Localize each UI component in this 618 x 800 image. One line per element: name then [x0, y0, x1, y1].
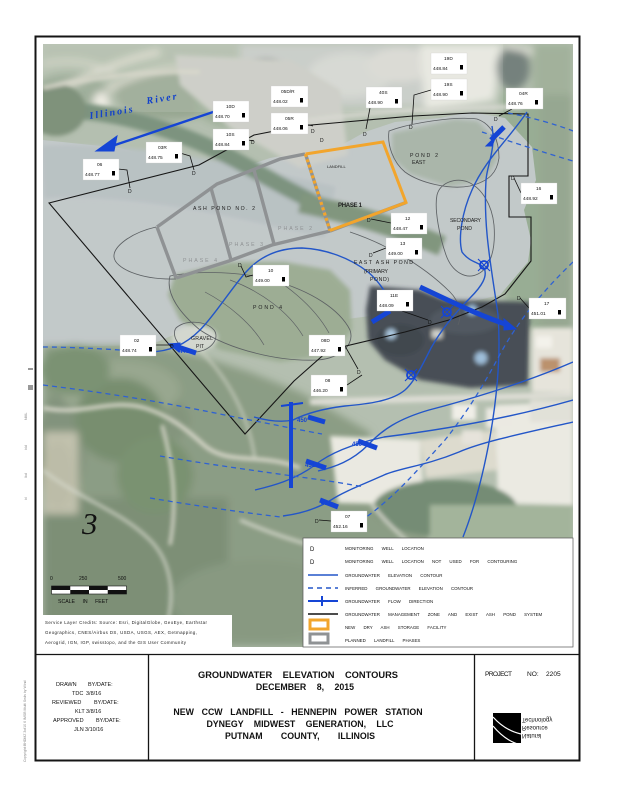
svg-text:3/8/16: 3/8/16 — [86, 691, 101, 697]
svg-text:250: 250 — [79, 576, 88, 582]
svg-text:D: D — [320, 138, 324, 144]
svg-text:08: 08 — [325, 378, 331, 384]
svg-text:DYNEGY MIDWEST GENERATION, LLC: DYNEGY MIDWEST GENERATION, LLC — [206, 719, 394, 729]
svg-text:GROUNDWATER MANAGEMENT ZONE AN: GROUNDWATER MANAGEMENT ZONE AND EXIST AS… — [345, 612, 543, 617]
svg-text:PHASE 3: PHASE 3 — [229, 242, 263, 248]
svg-text:07: 07 — [345, 514, 351, 520]
svg-text:19S: 19S — [444, 82, 453, 88]
svg-text:BY/DATE:: BY/DATE: — [96, 718, 121, 724]
svg-text:NO:: NO: — [527, 671, 539, 678]
svg-text:INFERRED GROUNDWATER ELEVATION: INFERRED GROUNDWATER ELEVATION CONTOUR — [345, 586, 473, 591]
svg-text:02: 02 — [134, 338, 140, 344]
svg-text:D: D — [128, 189, 132, 195]
svg-text:D: D — [428, 320, 432, 326]
svg-text:10D: 10D — [226, 104, 235, 110]
svg-text:448.90: 448.90 — [368, 100, 383, 106]
svg-text:447.92: 447.92 — [311, 348, 326, 354]
svg-text:0: 0 — [50, 576, 53, 582]
svg-text:448.74: 448.74 — [122, 348, 137, 354]
svg-text:D: D — [367, 218, 371, 224]
svg-text:10: 10 — [268, 268, 274, 274]
svg-text:lbd: lbd — [24, 473, 28, 478]
svg-text:449: 449 — [179, 349, 190, 355]
svg-text:448.47: 448.47 — [393, 226, 408, 232]
svg-text:D: D — [369, 253, 373, 259]
svg-text:PHASE 4: PHASE 4 — [183, 258, 217, 264]
svg-text:KLT: KLT — [75, 709, 85, 715]
svg-text:PHASE 1: PHASE 1 — [338, 203, 363, 209]
svg-text:D: D — [170, 344, 174, 350]
svg-text:D: D — [315, 519, 319, 525]
svg-text:450: 450 — [297, 418, 308, 424]
svg-text:448.77: 448.77 — [85, 172, 100, 178]
svg-text:TDC: TDC — [72, 691, 83, 697]
svg-text:448.76: 448.76 — [508, 101, 523, 107]
svg-text:(PRIMARY: (PRIMARY — [364, 269, 389, 275]
svg-text:40S: 40S — [379, 90, 388, 96]
svg-text:GRAVEL: GRAVEL — [191, 336, 213, 342]
svg-text:NML: NML — [24, 413, 28, 420]
svg-text:NEW CCW LANDFILL - HENNEPIN PO: NEW CCW LANDFILL - HENNEPIN POWER STATIO… — [173, 707, 422, 717]
svg-text:JLN: JLN — [74, 727, 84, 733]
svg-text:EAST: EAST — [412, 160, 426, 166]
svg-text:448.70: 448.70 — [215, 114, 230, 120]
svg-text:POND: POND — [457, 226, 472, 232]
svg-text:GROUNDWATER ELEVATION CONTOUR: GROUNDWATER ELEVATION CONTOUR — [345, 573, 442, 578]
svg-text:Resource: Resource — [522, 724, 548, 730]
svg-text:bl: bl — [24, 497, 28, 500]
svg-text:POND): POND) — [370, 277, 389, 283]
svg-text:D: D — [494, 117, 498, 123]
svg-text:D: D — [192, 171, 196, 177]
svg-text:448.84: 448.84 — [433, 66, 448, 72]
svg-text:06: 06 — [97, 162, 103, 168]
svg-text:451.01: 451.01 — [531, 311, 546, 317]
svg-text:05D/R: 05D/R — [281, 89, 295, 95]
svg-text:03R: 03R — [158, 145, 167, 151]
svg-text:Aerogrid, IGN, IGP, swisstopo,: Aerogrid, IGN, IGP, swisstopo, and the G… — [45, 640, 187, 645]
svg-text:D: D — [238, 263, 242, 269]
svg-text:D: D — [409, 125, 413, 131]
svg-text:10S: 10S — [226, 132, 235, 138]
svg-text:D: D — [511, 176, 515, 182]
svg-text:2205: 2205 — [546, 671, 561, 678]
svg-text:449.00: 449.00 — [388, 251, 403, 257]
svg-text:GROUNDWATER ELEVATION CONTOURS: GROUNDWATER ELEVATION CONTOURS — [198, 670, 398, 680]
svg-text:17: 17 — [544, 301, 550, 307]
svg-text:D: D — [310, 560, 315, 566]
svg-text:EAST ASH POND: EAST ASH POND — [354, 260, 413, 266]
svg-text:452.16: 452.16 — [333, 524, 348, 530]
svg-text:bld: bld — [24, 445, 28, 450]
svg-text:Natural: Natural — [522, 732, 541, 738]
svg-text:D: D — [357, 370, 361, 376]
svg-text:D: D — [251, 140, 255, 146]
svg-text:449.00: 449.00 — [255, 278, 270, 284]
svg-text:04R: 04R — [519, 91, 528, 97]
svg-text:448.84: 448.84 — [215, 142, 230, 148]
svg-text:448.75: 448.75 — [148, 155, 163, 161]
svg-text:ASH POND NO. 2: ASH POND NO. 2 — [193, 206, 255, 212]
svg-text:11E: 11E — [390, 293, 398, 299]
svg-text:13: 13 — [400, 241, 406, 247]
svg-text:12: 12 — [405, 216, 411, 222]
svg-text:05R: 05R — [285, 116, 294, 122]
svg-text:REVIEWED: REVIEWED — [52, 700, 81, 706]
svg-text:PUTNAM COUNTY, ILLINOIS: PUTNAM COUNTY, ILLINOIS — [225, 731, 375, 741]
svg-text:451: 451 — [305, 463, 316, 469]
svg-text:D: D — [311, 129, 315, 135]
svg-text:3/8/16: 3/8/16 — [86, 709, 101, 715]
svg-text:PLANNED LANDFILL PHASES: PLANNED LANDFILL PHASES — [345, 638, 420, 643]
svg-text:16: 16 — [536, 186, 542, 192]
svg-text:448.06: 448.06 — [273, 126, 288, 132]
svg-text:3: 3 — [81, 506, 98, 541]
svg-text:Technology: Technology — [522, 716, 552, 722]
svg-text:Geographics, CNES/Airbus DS, U: Geographics, CNES/Airbus DS, USDA, USGS,… — [45, 630, 197, 635]
svg-text:PROJECT: PROJECT — [485, 671, 512, 678]
svg-text:BY/DATE:: BY/DATE: — [88, 682, 113, 688]
svg-text:452: 452 — [321, 501, 332, 507]
svg-text:MONITORING WELL LOCATION NOT U: MONITORING WELL LOCATION NOT USED FOR CO… — [345, 559, 518, 564]
svg-text:D: D — [363, 132, 367, 138]
svg-text:D: D — [310, 547, 315, 553]
svg-text:PHASE 2: PHASE 2 — [278, 226, 312, 232]
svg-text:BY/DATE:: BY/DATE: — [94, 700, 119, 706]
svg-text:NEW DRY ASH STORAGE FACILITY: NEW DRY ASH STORAGE FACILITY — [345, 625, 447, 630]
svg-text:3/10/16: 3/10/16 — [85, 727, 103, 733]
svg-text:D: D — [517, 296, 521, 302]
svg-text:448.90: 448.90 — [433, 92, 448, 98]
svg-text:450: 450 — [352, 442, 363, 448]
svg-text:08D: 08D — [321, 338, 330, 344]
svg-text:Copyright:BHDMZ 3of10 6 IMSB M: Copyright:BHDMZ 3of10 6 IMSB Multi Seds … — [23, 680, 27, 762]
svg-text:DRAWN: DRAWN — [56, 682, 77, 688]
svg-text:19D: 19D — [444, 56, 453, 62]
svg-text:500: 500 — [118, 576, 127, 582]
svg-text:DECEMBER 8, 2015: DECEMBER 8, 2015 — [256, 682, 354, 692]
svg-text:Service Layer Credits: Source:: Service Layer Credits: Source: Esri, Dig… — [45, 620, 208, 625]
svg-text:PIT: PIT — [196, 344, 205, 350]
svg-text:SCALE IN FEET: SCALE IN FEET — [58, 599, 109, 605]
svg-text:448.92: 448.92 — [523, 196, 538, 202]
svg-text:446.20: 446.20 — [313, 388, 328, 394]
svg-text:448.02: 448.02 — [273, 99, 288, 105]
svg-text:SECONDARY: SECONDARY — [450, 218, 482, 224]
svg-text:APPROVED: APPROVED — [53, 718, 84, 724]
svg-text:448.09: 448.09 — [379, 303, 394, 309]
svg-text:MONITORING WELL LOCATION: MONITORING WELL LOCATION — [345, 546, 424, 551]
svg-text:LANDFILL: LANDFILL — [327, 164, 346, 169]
svg-text:GROUNDWATER FLOW DIRECTION: GROUNDWATER FLOW DIRECTION — [345, 599, 433, 604]
